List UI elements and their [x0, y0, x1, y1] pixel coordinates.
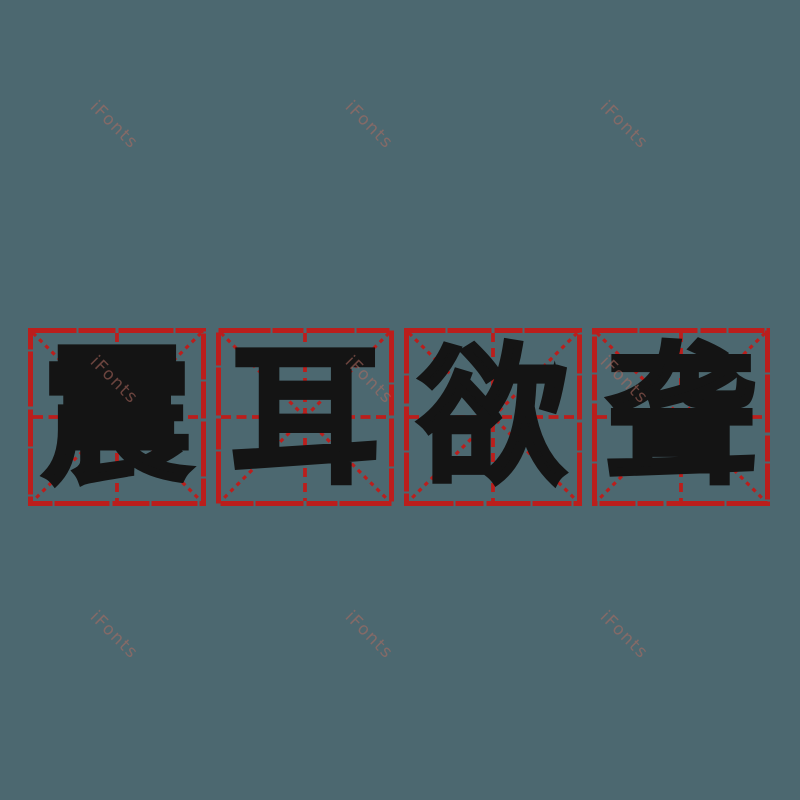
character: 耳 — [216, 328, 394, 506]
character-grid-row: 震 耳 欲 — [28, 328, 770, 506]
watermark-text: iFonts — [341, 607, 397, 663]
watermark-text: iFonts — [86, 607, 142, 663]
watermark-text: iFonts — [596, 97, 652, 153]
character: 震 — [28, 328, 206, 506]
watermark-text: iFonts — [596, 607, 652, 663]
mizige-cell: 耳 — [216, 328, 394, 506]
image-canvas: iFonts iFonts iFonts iFonts iFonts iFont… — [0, 0, 800, 800]
watermark-text: iFonts — [341, 97, 397, 153]
character: 欲 — [404, 328, 582, 506]
watermark-text: iFonts — [86, 97, 142, 153]
character: 聋 — [592, 328, 770, 506]
mizige-cell: 欲 — [404, 328, 582, 506]
mizige-cell: 聋 — [592, 328, 770, 506]
mizige-cell: 震 — [28, 328, 206, 506]
